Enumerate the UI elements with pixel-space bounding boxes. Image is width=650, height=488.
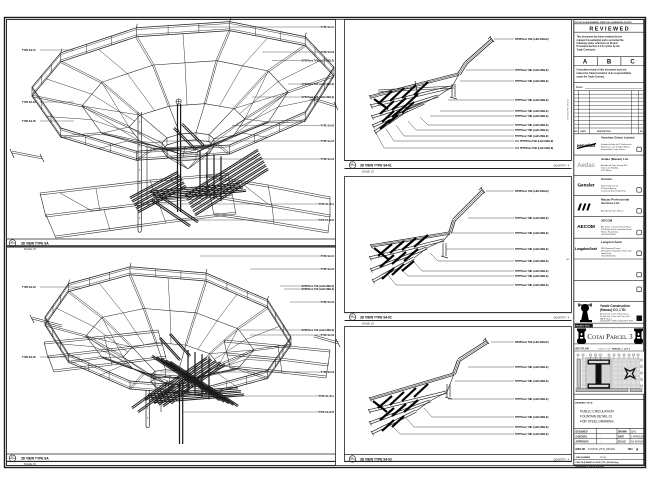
svg-text:SCALE 1:5: SCALE 1:5 <box>24 463 36 466</box>
svg-text:t 852 0000 0000: t 852 0000 0000 <box>601 233 616 236</box>
svg-text:SPSP5mm THK (L&D ANGLE): SPSP5mm THK (L&D ANGLE) <box>515 38 549 41</box>
svg-text:DESIGNED: DESIGNED <box>576 431 588 433</box>
svg-text:TPTP5mm THK (L&D ANGLE): TPTP5mm THK (L&D ANGLE) <box>515 248 549 251</box>
svg-text:21/F, Macau: 21/F, Macau <box>601 170 612 172</box>
svg-text:REFERENCE ON FILE NAME: REFERENCE ON FILE NAME <box>576 465 605 468</box>
svg-text:TYPE SA-05: TYPE SA-05 <box>22 120 36 123</box>
svg-text:TYPE SA-05 A: TYPE SA-05 A <box>319 203 335 206</box>
svg-text:TPTP5mm THK (L&D ANGLE): TPTP5mm THK (L&D ANGLE) <box>515 275 549 278</box>
svg-text:Procedure Section 5.4 for acti: Procedure Section 5.4 for action by the <box>577 45 621 48</box>
svg-text:TYPE SA-04: TYPE SA-04 <box>321 371 335 374</box>
svg-text:C: C <box>630 59 635 65</box>
svg-text:TPTP5mm THK (L&D ANGLE): TPTP5mm THK (L&D ANGLE) <box>515 232 549 235</box>
svg-text:DWG NO: DWG NO <box>576 449 586 451</box>
svg-text:DESCRIPTION: DESCRIPTION <box>597 131 611 133</box>
svg-text:Causeway Bay, Hong Kong: Causeway Bay, Hong Kong <box>601 190 625 192</box>
svg-text:3D VIEW TYPE S4-03: 3D VIEW TYPE S4-03 <box>360 457 392 461</box>
svg-text:KEY PLAN: KEY PLAN <box>576 347 589 351</box>
svg-text:(Macau) CO, LTD.: (Macau) CO, LTD. <box>600 308 626 312</box>
svg-text:SPSP5mm THK (L&D ANGLE): SPSP5mm THK (L&D ANGLE) <box>302 285 335 288</box>
svg-text:TYPE SA-05 B: TYPE SA-05 B <box>319 411 335 414</box>
svg-text:TYPE SA-05 B: TYPE SA-05 B <box>319 219 335 222</box>
svg-text:TPTP5mm THK (L&D ANGLE): TPTP5mm THK (L&D ANGLE) <box>515 260 549 263</box>
svg-text:TYPE SA-02: TYPE SA-02 <box>22 101 36 104</box>
svg-text:CHECKED: CHECKED <box>576 437 588 439</box>
svg-text:AECOM: AECOM <box>601 218 613 222</box>
svg-text:QUANTITY : 4: QUANTITY : 4 <box>554 316 570 319</box>
svg-text:SPSP5mm THK (L&D ANGLE): SPSP5mm THK (L&D ANGLE) <box>302 83 335 86</box>
svg-text:3D VIEW TYPE S4-01: 3D VIEW TYPE S4-01 <box>360 163 392 167</box>
svg-text:S-FOUN_PTD_SR-004: S-FOUN_PTD_SR-004 <box>588 447 615 451</box>
svg-text:CHO: CHO <box>631 431 636 433</box>
svg-text:FOR STEEL DRAWING: FOR STEEL DRAWING <box>580 420 614 424</box>
svg-text:21520: 21520 <box>600 457 607 459</box>
svg-text:R E V I E W E D: R E V I E W E D <box>589 26 628 32</box>
svg-text:TYPE SA-01: TYPE SA-01 <box>22 49 36 52</box>
svg-text:TPTP5mm THK (L&D ANGLE): TPTP5mm THK (L&D ANGLE) <box>515 398 549 401</box>
svg-text:Consultant review of this docu: Consultant review of this document does … <box>577 69 627 72</box>
svg-text:Resort-Hotel, Taipa, Macau: Resort-Hotel, Taipa, Macau <box>601 148 625 151</box>
svg-text:AS SHOWN: AS SHOWN <box>631 441 644 444</box>
svg-text:REV: REV <box>628 449 633 451</box>
svg-text:following status referred to: following status referred to in Project <box>577 42 618 45</box>
svg-text:TPTP5mm THK (L&D ANGLE): TPTP5mm THK (L&D ANGLE) <box>515 426 549 429</box>
svg-text:TYPE SA-04: TYPE SA-04 <box>321 158 335 161</box>
svg-text:TPTP5mm THK (L&D ANGLE): TPTP5mm THK (L&D ANGLE) <box>515 284 549 287</box>
svg-text:COTAI PARCEL 3: COTAI PARCEL 3 <box>587 333 633 341</box>
svg-text:DATE: DATE <box>618 436 625 439</box>
svg-text:SCALE 1:1 000: SCALE 1:1 000 <box>598 348 610 351</box>
svg-text:TPTP5mm THK (L&D ANGLE): TPTP5mm THK (L&D ANGLE) <box>515 69 549 72</box>
svg-text:TPTP5mm THK (L&D ANGLE): TPTP5mm THK (L&D ANGLE) <box>515 129 549 132</box>
svg-text:TYPE SA-01: TYPE SA-01 <box>321 255 335 258</box>
svg-text:relieve the Trade Contractor o: relieve the Trade Contractor of its resp… <box>577 72 633 75</box>
svg-text:LTL TPTP5mm THK (L&D ANGLE): LTL TPTP5mm THK (L&D ANGLE) <box>515 140 553 143</box>
svg-text:TPTP5mm THK (L&D ANGLE): TPTP5mm THK (L&D ANGLE) <box>515 380 549 383</box>
svg-text:APPROVED: APPROVED <box>576 441 589 444</box>
svg-text:TPTP5mm THK (L&D ANGLE): TPTP5mm THK (L&D ANGLE) <box>515 115 549 118</box>
svg-text:PUBLIC CIRCULATION: PUBLIC CIRCULATION <box>580 410 614 414</box>
svg-text:under the Trade Contract.: under the Trade Contract. <box>577 75 606 78</box>
svg-text:JOB NUMBER: JOB NUMBER <box>576 457 591 459</box>
svg-text:TPTP5mm THK (L&D ANGLE): TPTP5mm THK (L&D ANGLE) <box>515 416 549 419</box>
svg-text:A: A <box>583 59 588 65</box>
svg-text:TPTP5mm THK (L&D ANGLE): TPTP5mm THK (L&D ANGLE) <box>515 110 549 113</box>
svg-text:TPTP5mm THK (L&D ANGLE): TPTP5mm THK (L&D ANGLE) <box>515 366 549 369</box>
svg-text:relevant Consultant(s) and is: relevant Consultant(s) and is accorded t… <box>577 39 625 42</box>
svg-text:SCALE 1:5: SCALE 1:5 <box>362 323 374 326</box>
svg-text:Trade Contractor.: Trade Contractor. <box>577 48 597 51</box>
svg-text:3D VIEW TYPE S4-02: 3D VIEW TYPE S4-02 <box>360 315 392 319</box>
svg-text:B: B <box>607 59 612 65</box>
svg-text:TPTP5mm THK (L&D ANGLE): TPTP5mm THK (L&D ANGLE) <box>515 135 549 138</box>
svg-text:Gensler: Gensler <box>577 183 594 188</box>
svg-text:TPTP5mm THK (L&D ANGLE): TPTP5mm THK (L&D ANGLE) <box>515 124 549 127</box>
svg-text:TPTP5mm THK (L&D ANGLE): TPTP5mm THK (L&D ANGLE) <box>515 80 549 83</box>
svg-text:CAD FILE NAME S-FOUN_PTD_SR-00: CAD FILE NAME S-FOUN_PTD_SR-004.dwg <box>576 461 620 464</box>
svg-text:SPSP5mm THK (L&D ANGLE): SPSP5mm THK (L&D ANGLE) <box>302 288 335 291</box>
svg-text:TYPE SA-02: TYPE SA-02 <box>22 286 36 289</box>
svg-text:S-FOUN_PTD_SR-004: S-FOUN_PTD_SR-004 <box>568 98 570 120</box>
svg-text:AECOM: AECOM <box>577 224 595 230</box>
svg-text:SCALE 1:5: SCALE 1:5 <box>362 171 374 174</box>
svg-text:Aedas: Aedas <box>577 162 595 169</box>
svg-text:TYPE SA-03: TYPE SA-03 <box>321 334 335 337</box>
svg-text:TPTP5mm THK (L&D ANGLE): TPTP5mm THK (L&D ANGLE) <box>515 270 549 273</box>
svg-text:DATE: DATE <box>581 130 587 133</box>
svg-text:3D VIEW TYPE SA: 3D VIEW TYPE SA <box>21 457 49 461</box>
svg-text:SPSP5mm THK (L&D ANGLE): SPSP5mm THK (L&D ANGLE) <box>515 190 549 193</box>
svg-text:SPSP5mm THK (L&D ANGLE): SPSP5mm THK (L&D ANGLE) <box>302 60 335 63</box>
svg-text:1 APR/2019: 1 APR/2019 <box>631 436 644 439</box>
svg-text:TYPE SA-05: TYPE SA-05 <box>22 356 36 359</box>
svg-text:QUANTITY : 4: QUANTITY : 4 <box>554 164 570 167</box>
svg-text:Date :: Date : <box>576 85 584 89</box>
svg-text:SPSP5mm THK (L&D ANGLE): SPSP5mm THK (L&D ANGLE) <box>302 96 335 99</box>
svg-text:Aedas (Macau) Ltd.: Aedas (Macau) Ltd. <box>601 157 629 161</box>
svg-text:TYPE SA-04: TYPE SA-04 <box>321 140 335 143</box>
svg-text:LTL TPTP5mm THK (L&D ANGLE): LTL TPTP5mm THK (L&D ANGLE) <box>515 147 553 150</box>
svg-text:TYPE SA-01: TYPE SA-01 <box>321 26 335 29</box>
svg-text:t 852 2830 3500: t 852 2830 3500 <box>601 255 616 258</box>
svg-text:Gensler: Gensler <box>601 177 613 181</box>
svg-text:DRAWN: DRAWN <box>618 430 627 433</box>
svg-text:TYPE SA-05 A: TYPE SA-05 A <box>319 395 335 398</box>
svg-text:Venetian Orient Limited: Venetian Orient Limited <box>601 136 635 140</box>
svg-text:PROJECT TITLE: PROJECT TITLE <box>576 326 591 328</box>
svg-text:TPTP5mm THK (L&D ANGLE): TPTP5mm THK (L&D ANGLE) <box>515 99 549 102</box>
svg-text:FOUNTAIN DETAIL 01: FOUNTAIN DETAIL 01 <box>580 415 612 419</box>
svg-text:This document has been reviewe: This document has been reviewed by the <box>577 36 623 39</box>
svg-text:TPTP5mm THK (L&D ANGLE): TPTP5mm THK (L&D ANGLE) <box>515 217 549 220</box>
svg-text:TYPE SA-02: TYPE SA-02 <box>321 301 335 304</box>
svg-text:TYPE SA-02: TYPE SA-02 <box>321 51 335 54</box>
svg-text:tel:(853)2875 3838 fax:(853)2: tel:(853)2875 3838 fax:(853)2875 3938 <box>600 320 633 323</box>
svg-text:Langdon Seah: Langdon Seah <box>601 240 622 244</box>
svg-text:SPSP5mm THK (L&D ANGLE): SPSP5mm THK (L&D ANGLE) <box>302 329 335 332</box>
svg-text:TYPE SA-03: TYPE SA-03 <box>321 125 335 128</box>
svg-text:NO.: NO. <box>575 131 579 133</box>
svg-text:LangdonSeah: LangdonSeah <box>575 247 597 251</box>
svg-text:Avenida da Praia, Macau: Avenida da Praia, Macau <box>601 210 623 213</box>
svg-text:TYPE SA-02: TYPE SA-02 <box>321 268 335 271</box>
svg-text:DO NOT SCALE DRAWING. VERIFY A: DO NOT SCALE DRAWING. VERIFY ALL DIMENSI… <box>575 21 632 24</box>
svg-text:3D VIEW TYPE SA: 3D VIEW TYPE SA <box>21 241 49 245</box>
svg-text:DRAWING TITLE: DRAWING TITLE <box>575 401 593 404</box>
svg-text:SCALE 1:5: SCALE 1:5 <box>24 248 36 251</box>
svg-text:SCALE: SCALE <box>618 441 626 444</box>
svg-text:SPSP5mm THK (L&D ANGLE): SPSP5mm THK (L&D ANGLE) <box>515 341 549 344</box>
svg-text:PARCEL 1, LOT 2: PARCEL 1, LOT 2 <box>612 348 631 351</box>
svg-text:TPTP5mm THK (L&D ANGLE): TPTP5mm THK (L&D ANGLE) <box>515 433 549 436</box>
